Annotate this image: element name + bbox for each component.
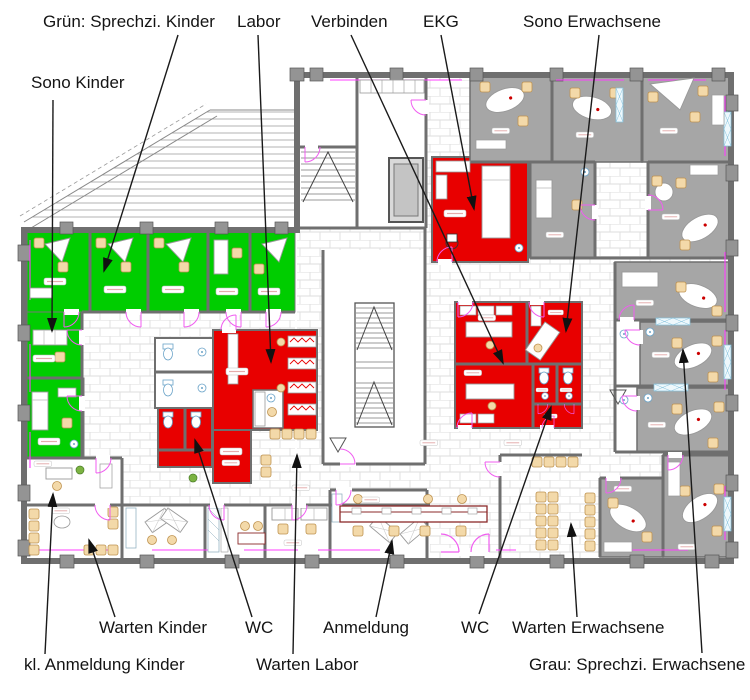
label-labor: Labor — [237, 13, 280, 32]
label-warten-kinder: Warten Kinder — [99, 619, 207, 638]
label-sono-erwachsene: Sono Erwachsene — [523, 13, 661, 32]
label-anmeldung: Anmeldung — [323, 619, 409, 638]
label-warten-erwachsene: Warten Erwachsene — [512, 619, 664, 638]
label-kl-anmeldung-kinder: kl. Anmeldung Kinder — [24, 656, 185, 675]
label-verbinden: Verbinden — [311, 13, 388, 32]
label-wc-erwachsene: WC — [461, 619, 489, 638]
terrace-hatch — [20, 104, 297, 228]
floor-plan-page: Grün: Sprechzi. Kinder Labor Verbinden E… — [0, 0, 750, 700]
label-sono-kinder: Sono Kinder — [31, 74, 125, 93]
label-ekg: EKG — [423, 13, 459, 32]
label-grau-sprechzi-erwachsene: Grau: Sprechzi. Erwachsene — [529, 656, 745, 675]
label-warten-labor: Warten Labor — [256, 656, 358, 675]
floor-plan-drawing — [0, 0, 750, 700]
label-wc-kinder: WC — [245, 619, 273, 638]
label-gruen-sprechzi-kinder: Grün: Sprechzi. Kinder — [43, 13, 215, 32]
